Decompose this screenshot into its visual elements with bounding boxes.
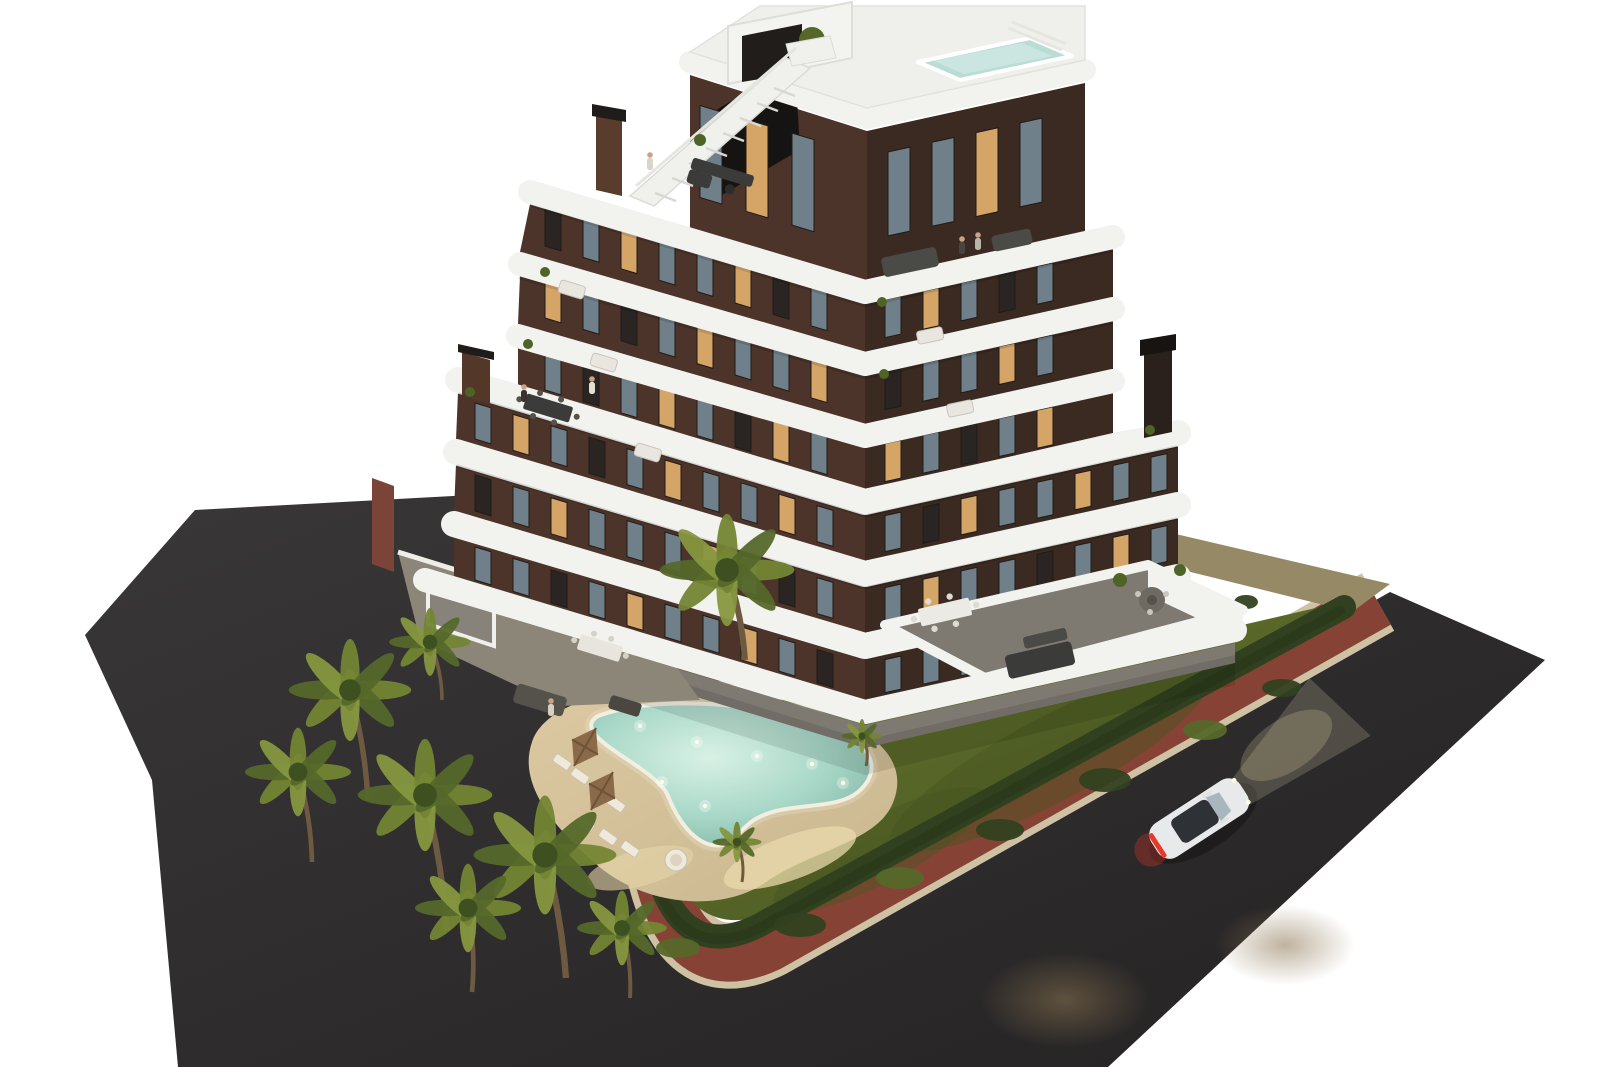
palm-crown	[339, 679, 361, 701]
window	[589, 437, 605, 478]
window	[589, 509, 605, 550]
palm-crown	[614, 920, 630, 936]
penthouse-plant	[694, 134, 706, 146]
window	[513, 486, 529, 527]
window	[1151, 526, 1167, 566]
window	[932, 138, 954, 227]
pool-light	[841, 781, 845, 785]
balcony-plant	[523, 339, 533, 349]
window	[475, 475, 491, 516]
person	[521, 384, 527, 402]
window	[779, 638, 795, 676]
person	[589, 376, 595, 394]
window	[741, 483, 757, 524]
window	[811, 432, 827, 475]
palm-crown	[532, 842, 557, 867]
window	[999, 415, 1015, 457]
palm-crown	[858, 732, 865, 739]
pool-light	[755, 754, 759, 758]
bush	[876, 867, 924, 889]
window	[779, 494, 795, 535]
pool-light	[695, 740, 699, 744]
window	[1020, 118, 1042, 207]
streetlight-glow	[980, 952, 1150, 1048]
bush	[1079, 768, 1131, 792]
window	[746, 119, 768, 218]
se-terrace-plant	[1113, 573, 1127, 587]
window	[961, 495, 977, 535]
window	[1113, 462, 1129, 502]
window	[817, 650, 833, 688]
window	[885, 656, 901, 693]
window	[817, 578, 833, 619]
window	[817, 506, 833, 547]
window	[551, 570, 567, 608]
palm-crown	[413, 783, 437, 807]
window	[1037, 479, 1053, 519]
balcony-plant	[879, 369, 889, 379]
window	[999, 487, 1015, 527]
person	[548, 698, 554, 716]
pool-light	[703, 804, 707, 808]
palm-crown	[715, 558, 739, 582]
pool-light	[638, 724, 642, 728]
chimney-right	[1144, 346, 1172, 438]
window	[885, 512, 901, 552]
window	[551, 498, 567, 539]
palm-crown	[733, 838, 742, 847]
window	[665, 460, 681, 501]
palm-crown	[423, 635, 437, 649]
daybed-cushion	[670, 854, 682, 866]
se-bistro-table	[1147, 595, 1157, 605]
window	[1037, 263, 1053, 305]
person	[975, 232, 981, 250]
render-canvas	[0, 0, 1600, 1067]
palm-crown	[459, 899, 478, 918]
window	[703, 471, 719, 512]
se-terrace-plant-2	[1174, 564, 1186, 576]
window	[513, 558, 529, 596]
person	[647, 152, 653, 170]
window	[999, 271, 1015, 313]
window	[627, 593, 643, 631]
architectural-render-scene	[0, 0, 1600, 1067]
window	[735, 409, 751, 452]
pool-light	[660, 780, 664, 784]
window	[475, 403, 491, 444]
chimney-left	[462, 352, 490, 404]
window	[923, 432, 939, 474]
window	[961, 423, 977, 465]
window	[1037, 335, 1053, 377]
window	[1037, 407, 1053, 449]
balcony-plant	[465, 387, 475, 397]
window	[513, 414, 529, 455]
window	[475, 547, 491, 585]
bush	[1183, 720, 1227, 740]
window	[888, 147, 910, 236]
window	[627, 521, 643, 562]
window	[1151, 454, 1167, 494]
chimney-penthouse	[596, 112, 622, 196]
window	[703, 615, 719, 653]
window	[976, 128, 998, 217]
window	[551, 426, 567, 467]
window	[923, 504, 939, 544]
balcony-plant	[1145, 425, 1155, 435]
brick-boundary-wall	[372, 478, 394, 572]
window	[589, 581, 605, 619]
window	[999, 343, 1015, 385]
bush	[774, 913, 826, 937]
balcony-plant	[877, 297, 887, 307]
window	[665, 604, 681, 642]
palm-crown	[289, 763, 308, 782]
window	[1075, 470, 1091, 510]
bush	[656, 938, 700, 958]
window	[792, 133, 814, 232]
balcony-plant	[540, 267, 550, 277]
bush	[976, 819, 1024, 841]
person	[959, 236, 965, 254]
window	[961, 279, 977, 321]
window	[961, 351, 977, 393]
apartment-building	[372, 2, 1243, 775]
window	[697, 398, 713, 441]
streetlight-glow-2	[1215, 905, 1355, 985]
pool-light	[810, 762, 814, 766]
window	[773, 420, 789, 463]
window	[885, 440, 901, 482]
bush	[1262, 679, 1302, 697]
